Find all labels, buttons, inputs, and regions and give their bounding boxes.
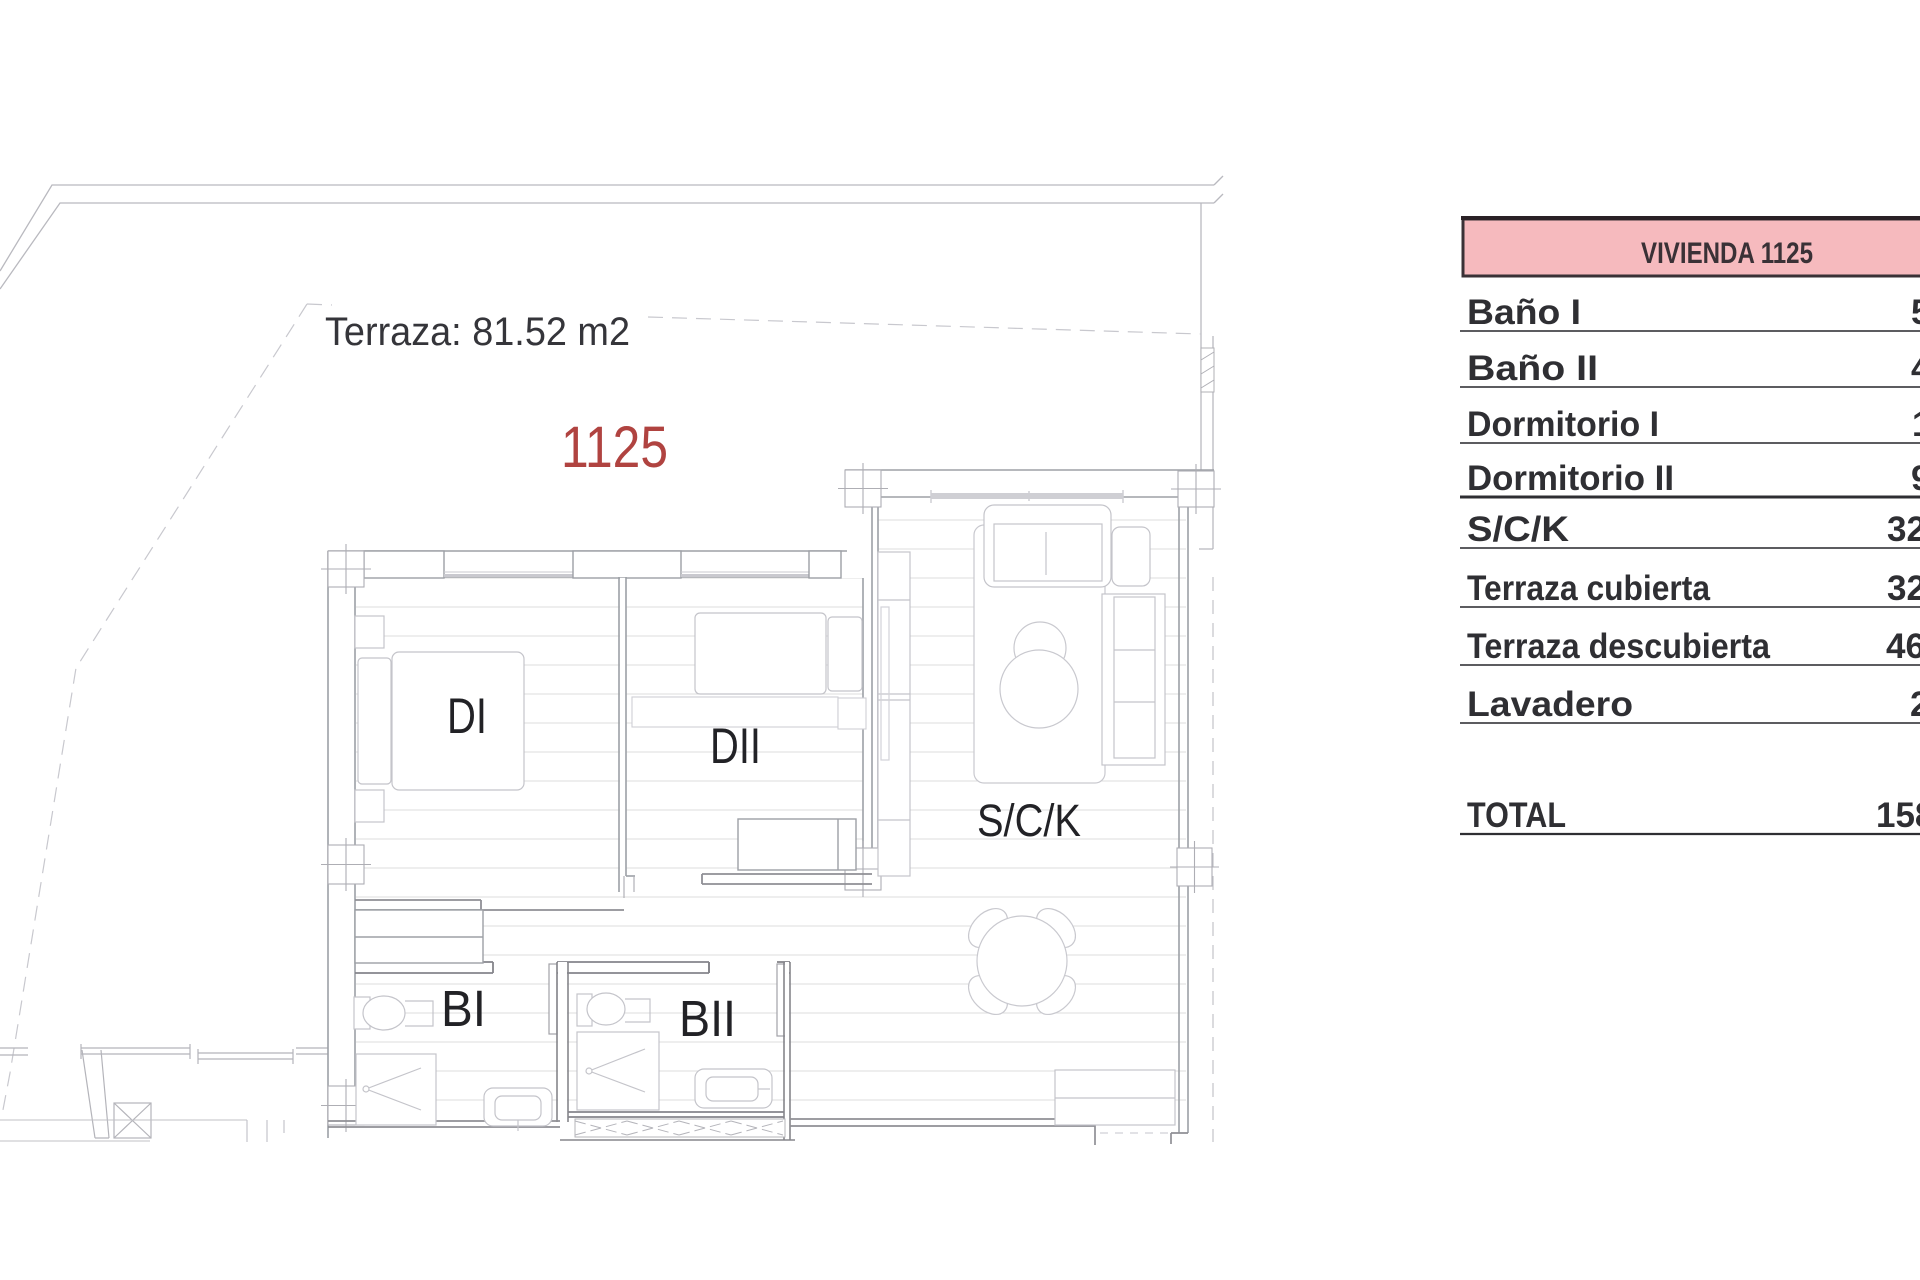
svg-text:158: 158 [1876, 796, 1920, 835]
svg-text:4: 4 [1911, 349, 1920, 388]
svg-text:Terraza: 81.52 m2: Terraza: 81.52 m2 [325, 310, 630, 354]
svg-text:S/C/K: S/C/K [977, 795, 1081, 846]
svg-text:46: 46 [1886, 627, 1920, 666]
svg-text:Baño II: Baño II [1467, 349, 1598, 388]
svg-text:BI: BI [441, 980, 486, 1037]
svg-text:Lavadero: Lavadero [1467, 685, 1633, 724]
svg-text:S/C/K: S/C/K [1467, 510, 1569, 549]
svg-text:TOTAL: TOTAL [1467, 796, 1566, 835]
svg-text:DI: DI [447, 688, 487, 744]
svg-text:1: 1 [1912, 405, 1920, 444]
svg-text:1125: 1125 [561, 415, 668, 480]
svg-text:Terraza descubierta: Terraza descubierta [1467, 627, 1770, 666]
svg-text:2: 2 [1910, 685, 1920, 724]
svg-text:Baño I: Baño I [1467, 293, 1581, 332]
svg-text:Dormitorio II: Dormitorio II [1467, 459, 1674, 498]
svg-text:DII: DII [710, 718, 761, 774]
svg-text:Dormitorio I: Dormitorio I [1467, 405, 1659, 444]
svg-text:BII: BII [679, 990, 736, 1047]
svg-text:9: 9 [1911, 459, 1920, 498]
svg-text:5: 5 [1911, 293, 1920, 332]
svg-text:32: 32 [1887, 569, 1920, 608]
svg-text:Terraza cubierta: Terraza cubierta [1467, 569, 1710, 608]
svg-text:32: 32 [1887, 510, 1920, 549]
svg-text:VIVIENDA 1125: VIVIENDA 1125 [1641, 237, 1813, 270]
